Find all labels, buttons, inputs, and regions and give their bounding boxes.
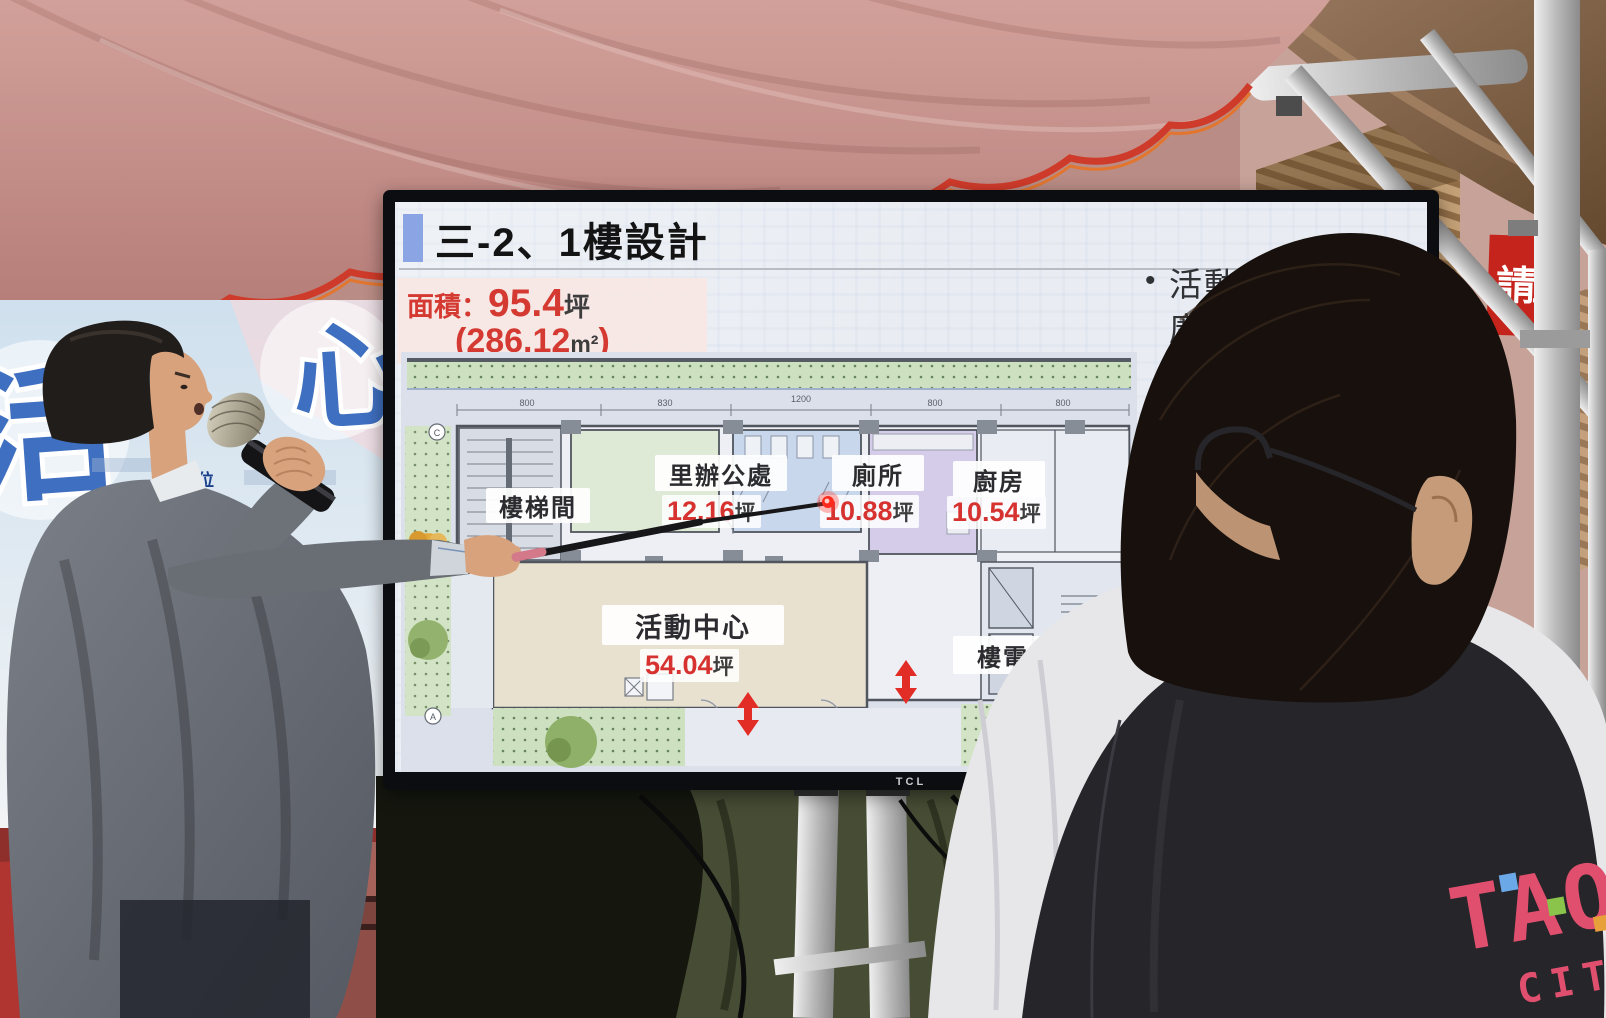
audience-member: TAO CITY [928, 233, 1606, 1018]
foreground-layer: TAO CITY [0, 0, 1606, 1018]
presenter [7, 321, 839, 1018]
laser-pointer-stick [516, 504, 822, 558]
vest-pixel-green [1547, 897, 1567, 917]
laser-dot [817, 491, 839, 513]
presenter-cuff [430, 540, 470, 576]
presenter-mouth [194, 403, 204, 415]
presenter-trousers [120, 900, 310, 1018]
vest-pixel-blue [1499, 873, 1519, 893]
photo-scene: 請 至 [0, 0, 1606, 1018]
presenter-eye [181, 385, 188, 389]
presenter-face [150, 348, 212, 434]
